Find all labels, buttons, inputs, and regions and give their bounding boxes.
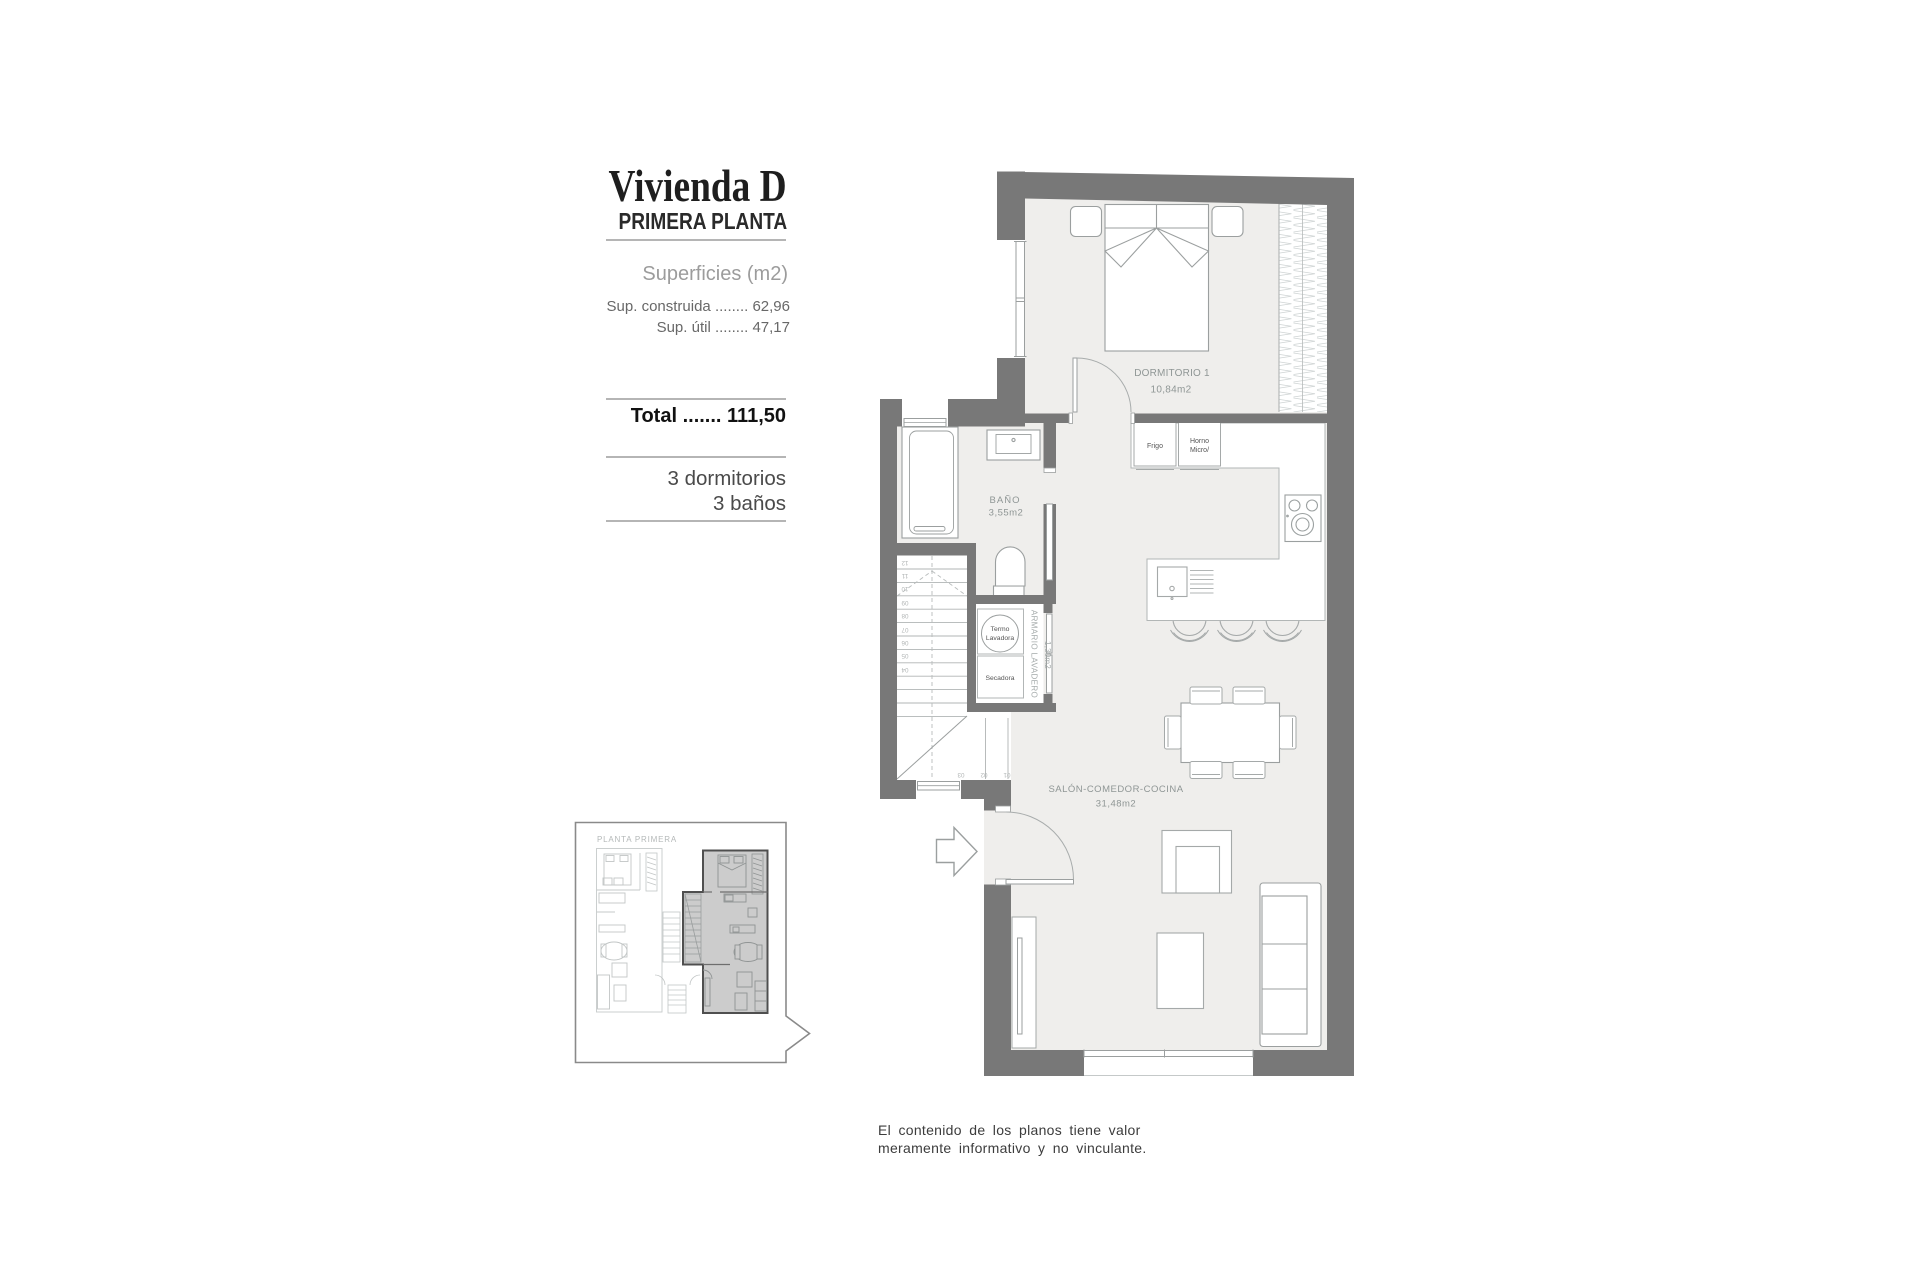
svg-text:Secadora: Secadora [985, 675, 1014, 682]
svg-text:10: 10 [901, 585, 909, 592]
svg-text:SALÓN-COMEDOR-COCINA: SALÓN-COMEDOR-COCINA [1048, 784, 1183, 795]
svg-text:09: 09 [901, 599, 909, 606]
svg-text:Frigo: Frigo [1147, 443, 1163, 450]
svg-text:ARMARIO LAVADERO: ARMARIO LAVADERO [1030, 610, 1039, 698]
svg-text:DORMITORIO 1: DORMITORIO 1 [1134, 368, 1210, 379]
svg-text:12: 12 [901, 559, 909, 566]
svg-text:Micro/: Micro/ [1190, 447, 1209, 454]
svg-text:05: 05 [901, 652, 909, 659]
svg-text:Horno: Horno [1190, 438, 1209, 445]
svg-text:BAÑO: BAÑO [990, 495, 1021, 506]
svg-text:1,30m2: 1,30m2 [1043, 641, 1052, 669]
svg-text:01: 01 [1003, 771, 1011, 778]
svg-text:08: 08 [901, 612, 909, 619]
svg-text:07: 07 [901, 626, 909, 633]
svg-text:02: 02 [980, 771, 988, 778]
svg-text:11: 11 [901, 572, 908, 579]
svg-text:3,55m2: 3,55m2 [989, 508, 1024, 519]
svg-text:10,84m2: 10,84m2 [1150, 385, 1191, 396]
svg-text:Termo: Termo [991, 626, 1010, 633]
svg-text:06: 06 [901, 639, 909, 646]
svg-text:Lavadora: Lavadora [986, 635, 1015, 642]
svg-text:04: 04 [901, 666, 909, 673]
svg-text:PLANTA PRIMERA: PLANTA PRIMERA [597, 835, 677, 844]
svg-text:03: 03 [957, 771, 965, 778]
svg-text:31,48m2: 31,48m2 [1096, 799, 1136, 810]
